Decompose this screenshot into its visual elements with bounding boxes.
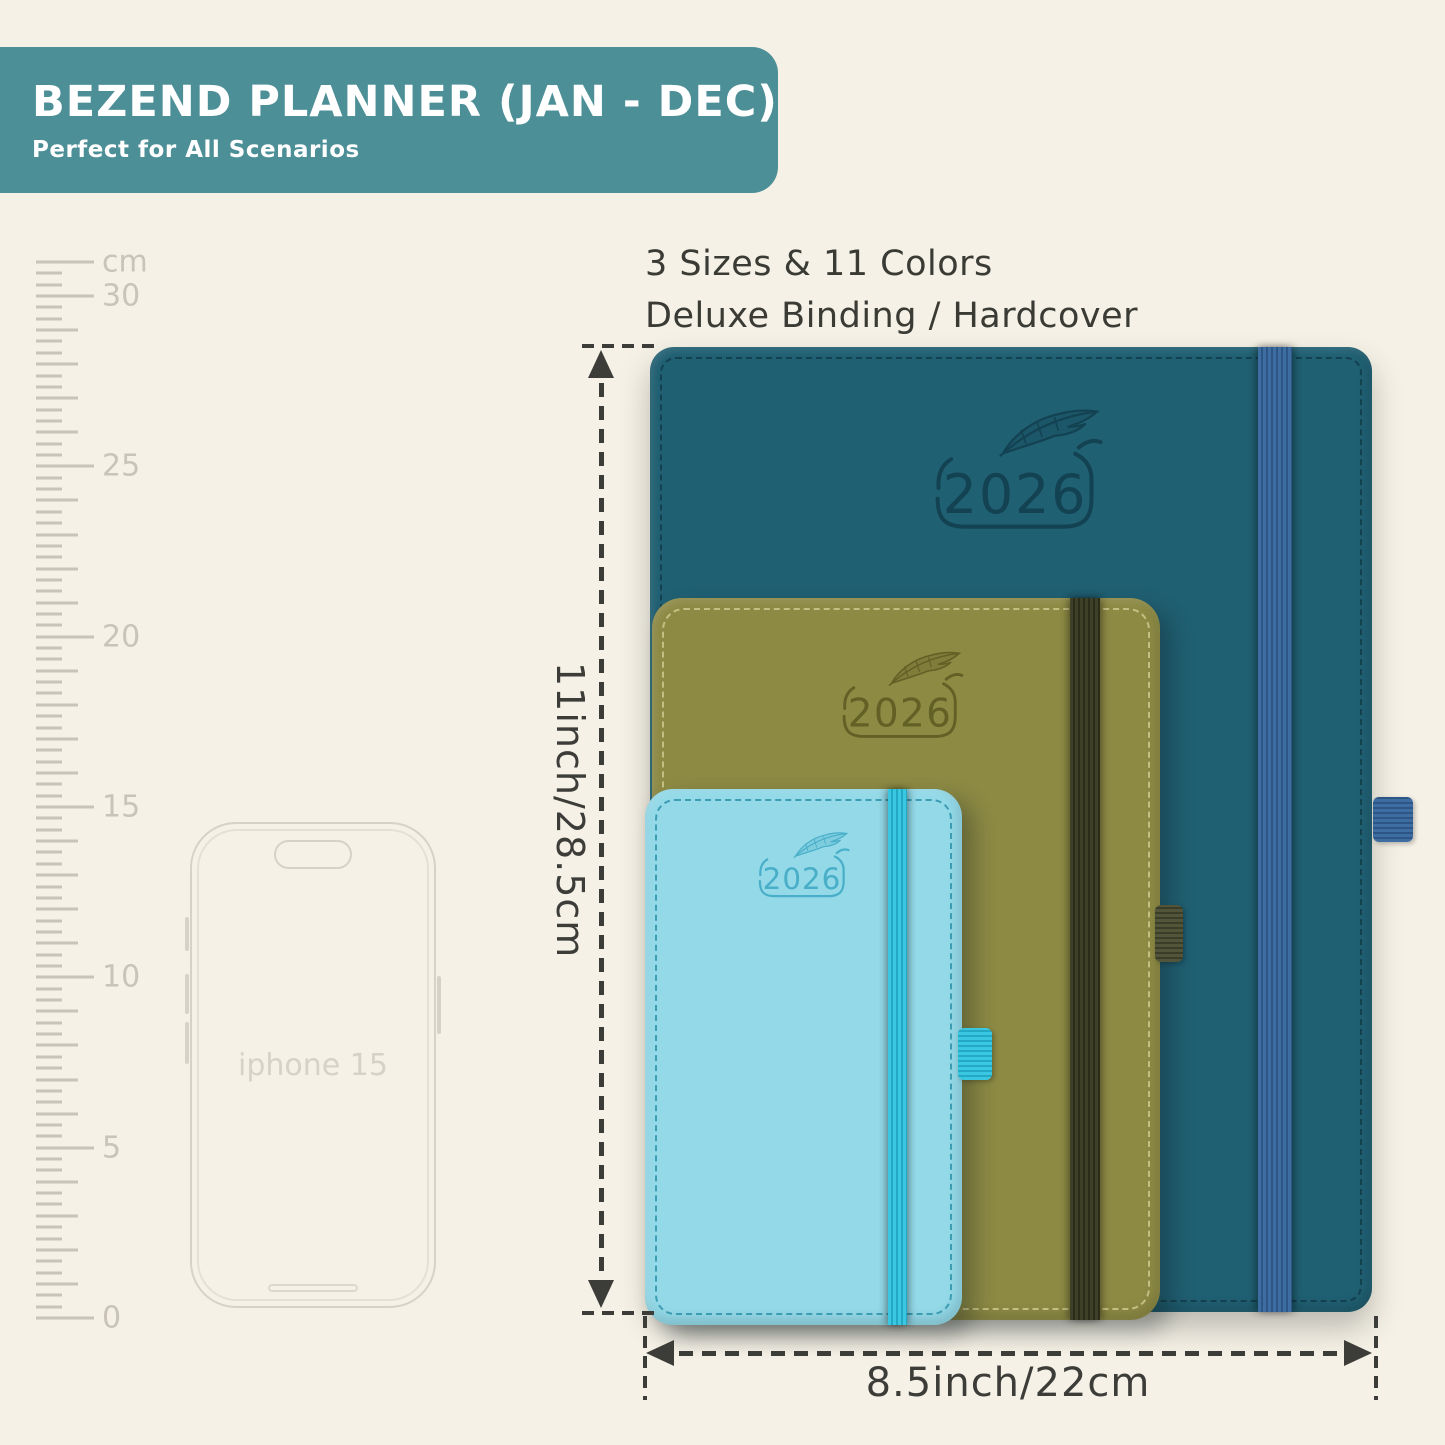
ruler-tick xyxy=(36,465,94,468)
ruler-tick xyxy=(36,851,62,854)
ruler-tick xyxy=(36,340,62,343)
ruler-tick xyxy=(36,1305,62,1308)
ruler-label: 10 xyxy=(102,960,140,995)
ruler-tick xyxy=(36,1135,62,1138)
height-dimension-label: 11inch/28.5cm xyxy=(548,662,592,958)
ruler-tick xyxy=(36,1101,62,1104)
arrow-down-icon xyxy=(588,1280,614,1308)
ruler-tick xyxy=(36,442,62,445)
ruler-tick xyxy=(36,896,62,899)
ruler-tick xyxy=(36,624,62,627)
pen-loop xyxy=(1155,905,1183,962)
ruler-tick xyxy=(36,1112,78,1115)
ruler-tick xyxy=(36,953,62,956)
year-emblem: 2026 xyxy=(835,650,965,741)
ruler-tick xyxy=(36,499,78,502)
ruler-tick xyxy=(36,385,62,388)
arrow-right-icon xyxy=(1344,1340,1372,1366)
ruler-tick xyxy=(36,283,62,286)
ruler-tick xyxy=(36,522,62,525)
emblem-year-text: 2026 xyxy=(848,692,952,737)
ruler-tick xyxy=(36,726,62,729)
ruler-tick xyxy=(36,669,78,672)
ruler-tick xyxy=(36,613,62,616)
arrow-up-icon xyxy=(588,350,614,378)
home-indicator xyxy=(268,1284,358,1292)
year-emblem: 2026 xyxy=(925,407,1105,533)
elastic-band xyxy=(1070,598,1100,1320)
ruler-tick xyxy=(36,885,62,888)
ruler-tick xyxy=(36,419,62,422)
ruler-tick xyxy=(36,715,62,718)
ruler-tick xyxy=(36,556,62,559)
emblem-bracket-hook xyxy=(946,674,962,679)
ruler-tick xyxy=(36,806,94,809)
ruler-tick xyxy=(36,1055,62,1058)
ruler-tick xyxy=(36,1237,62,1240)
ruler-tick xyxy=(36,737,78,740)
ruler-tick xyxy=(36,1294,62,1297)
emblem-bracket-hook xyxy=(837,849,849,853)
ruler-tick xyxy=(36,1033,62,1036)
volume-up-button-outline xyxy=(185,917,189,951)
ruler-tick xyxy=(36,635,94,638)
ruler-tick xyxy=(36,692,62,695)
ruler-tick xyxy=(36,590,62,593)
ruler-tick xyxy=(36,1192,62,1195)
ruler-tick xyxy=(36,771,78,774)
cm-ruler: cm302520151050 xyxy=(36,0,156,1445)
ruler-tick xyxy=(36,1282,78,1285)
elastic-band xyxy=(888,789,907,1325)
ruler-tick xyxy=(36,930,62,933)
feather-icon xyxy=(890,653,960,686)
ruler-tick xyxy=(36,828,62,831)
ruler-tick xyxy=(36,647,62,650)
extension-line-bottom xyxy=(582,1311,656,1315)
ruler-tick xyxy=(36,306,62,309)
ruler-tick xyxy=(36,488,62,491)
ruler-tick xyxy=(36,1158,62,1161)
volume-down-button-outline xyxy=(185,974,189,1014)
ruler-tick xyxy=(36,760,62,763)
power-button-outline xyxy=(437,976,441,1034)
ruler-tick xyxy=(36,658,62,661)
ruler-tick xyxy=(36,1169,62,1172)
ruler-label: 25 xyxy=(102,449,140,484)
width-dimension-label: 8.5inch/22cm xyxy=(808,1360,1208,1406)
ruler-label: 0 xyxy=(102,1301,121,1336)
ruler-label: 30 xyxy=(102,279,140,314)
feature-text-block: 3 Sizes & 11 Colors Deluxe Binding / Har… xyxy=(645,238,1138,342)
planner-small-skyblue: 2026 xyxy=(645,789,962,1325)
ruler-tick xyxy=(36,567,78,570)
ruler-tick xyxy=(36,987,62,990)
ruler-tick xyxy=(36,783,62,786)
ruler-tick xyxy=(36,578,62,581)
width-dimension-line xyxy=(656,1351,1368,1356)
feather-icon xyxy=(794,833,847,857)
ruler-tick xyxy=(36,874,78,877)
iphone-label: iphone 15 xyxy=(192,1048,434,1083)
ruler-tick xyxy=(36,544,62,547)
pen-loop xyxy=(1373,797,1413,842)
year-emblem: 2026 xyxy=(753,831,851,900)
feather-icon xyxy=(1001,411,1098,456)
product-size-infographic: BEZEND PLANNER (JAN - DEC) Perfect for A… xyxy=(0,0,1445,1445)
ruler-label: cm xyxy=(102,245,148,280)
height-dimension-line xyxy=(599,360,604,1295)
ruler-tick xyxy=(36,601,78,604)
ruler-tick xyxy=(36,261,94,264)
ruler-tick xyxy=(36,1180,78,1183)
ruler-tick xyxy=(36,1203,62,1206)
feature-line-binding: Deluxe Binding / Hardcover xyxy=(645,290,1138,342)
ruler-tick xyxy=(36,351,62,354)
ruler-tick xyxy=(36,908,78,911)
ruler-tick xyxy=(36,317,62,320)
pen-loop xyxy=(958,1028,992,1080)
ruler-tick xyxy=(36,817,62,820)
emblem-year-text: 2026 xyxy=(943,463,1088,526)
ruler-tick xyxy=(36,999,62,1002)
ruler-tick xyxy=(36,840,78,843)
dynamic-island-icon xyxy=(274,840,352,869)
ruler-tick xyxy=(36,1260,62,1263)
ruler-tick xyxy=(36,1226,62,1229)
extension-line-right xyxy=(1374,1316,1378,1400)
ruler-tick xyxy=(36,965,62,968)
ruler-tick xyxy=(36,1089,62,1092)
ruler-tick xyxy=(36,1271,62,1274)
ruler-tick xyxy=(36,329,78,332)
ruler-label: 5 xyxy=(102,1130,121,1165)
ruler-tick xyxy=(36,408,62,411)
ruler-tick xyxy=(36,703,78,706)
ruler-tick xyxy=(36,431,78,434)
ruler-tick xyxy=(36,794,62,797)
ruler-tick xyxy=(36,272,62,275)
ruler-tick xyxy=(36,1123,62,1126)
ruler-label: 15 xyxy=(102,790,140,825)
ruler-tick xyxy=(36,295,94,298)
ruler-tick xyxy=(36,533,78,536)
ruler-tick xyxy=(36,510,62,513)
extension-line-top xyxy=(582,344,656,348)
ruler-tick xyxy=(36,942,78,945)
elastic-band xyxy=(1258,347,1292,1312)
ruler-tick xyxy=(36,397,78,400)
ruler-tick xyxy=(36,976,94,979)
ruler-tick xyxy=(36,374,62,377)
ruler-tick xyxy=(36,476,62,479)
ruler-tick xyxy=(36,1044,78,1047)
ruler-tick xyxy=(36,1010,78,1013)
emblem-year-text: 2026 xyxy=(763,862,842,896)
ruler-tick xyxy=(36,681,62,684)
ruler-tick xyxy=(36,363,78,366)
ruler-tick xyxy=(36,1021,62,1024)
ruler-tick xyxy=(36,1078,78,1081)
ruler-tick xyxy=(36,749,62,752)
action-button-outline xyxy=(185,1022,189,1064)
ruler-tick xyxy=(36,1248,78,1251)
ruler-tick xyxy=(36,1214,78,1217)
ruler-tick xyxy=(36,862,62,865)
ruler-tick xyxy=(36,1067,62,1070)
ruler-label: 20 xyxy=(102,619,140,654)
arrow-left-icon xyxy=(646,1340,674,1366)
ruler-tick xyxy=(36,1317,94,1320)
iphone-outline: iphone 15 xyxy=(190,822,436,1308)
ruler-tick xyxy=(36,1146,94,1149)
ruler-tick xyxy=(36,454,62,457)
ruler-tick xyxy=(36,919,62,922)
feature-line-sizes-colors: 3 Sizes & 11 Colors xyxy=(645,238,1138,290)
emblem-bracket-hook xyxy=(1079,441,1101,448)
